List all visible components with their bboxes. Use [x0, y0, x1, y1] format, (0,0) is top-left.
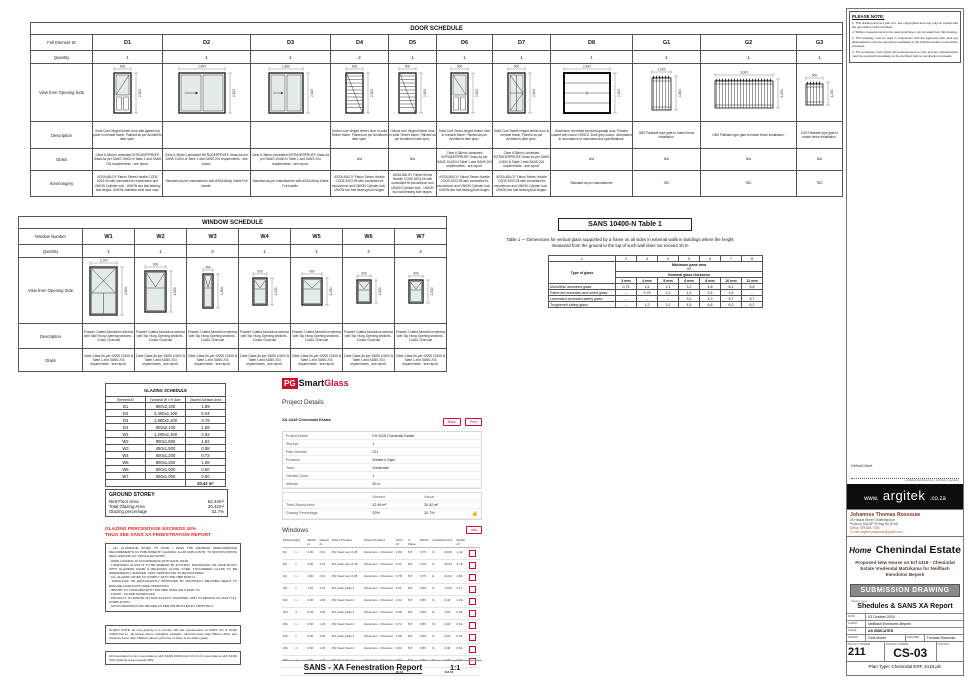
pg-logo-glass: Glass — [324, 378, 349, 388]
pg-windows-cell-4-1: 1 — [294, 596, 306, 608]
svg-text:900: 900 — [457, 65, 463, 69]
glazing-cell-5-0: W2 — [106, 438, 146, 445]
pg-windows-cell-0-7: 5.8 — [407, 548, 419, 560]
pg-windows-cell-4-5: Aluminium - Charcoal — [363, 596, 395, 608]
pg-windows-header-12 — [468, 536, 480, 548]
svg-text:2,100: 2,100 — [423, 89, 427, 97]
element-id-W5: W5 — [291, 229, 343, 245]
pg-windows-action-1[interactable] — [468, 560, 480, 572]
pg-windows-cell-3-9: N — [431, 584, 443, 596]
back-button[interactable]: Back — [443, 418, 461, 426]
revision-cell: REVISION — [937, 642, 963, 661]
element-qty-W4: 1 — [239, 245, 291, 258]
pg-windows-cell-1-0: D2 — [282, 560, 294, 572]
svg-text:2,100: 2,100 — [310, 89, 314, 97]
glazing-cell-3-1: 900x2,100 — [146, 424, 186, 431]
sheet-name: Shedules & SANS XA Report — [847, 603, 963, 610]
field-client-label: CLIENT — [847, 621, 866, 627]
please-note-item-4: 4. The contractor must check all measure… — [852, 50, 958, 58]
element-glass-G3: N/A — [797, 149, 843, 171]
element-qty-G1: 1 — [633, 51, 701, 64]
element-drawing-G1: 1,0001,800 — [633, 64, 701, 122]
pg-windows-cell-6-4: PG Clear Float 4 — [331, 620, 363, 632]
please-note-item-1: 1. This drawing and any part of it, are … — [852, 21, 958, 29]
element-drawing-D4: 9002,100 — [331, 64, 389, 122]
row-select-checkbox[interactable] — [469, 550, 476, 557]
pg-windows-cell-7-3: 1.20 — [319, 632, 331, 644]
pg-windows-cell-5-0: W3 — [282, 608, 294, 620]
pg-windows-action-0[interactable] — [468, 548, 480, 560]
pg-windows-cell-2-10: 21.92 — [443, 572, 455, 584]
row-select-checkbox[interactable] — [469, 598, 476, 605]
please-note-title: PLEASE NOTE: — [852, 14, 958, 19]
pg-windows-header-7: U Value — [407, 536, 419, 548]
pg-windows-header-9: Azimuth — [431, 536, 443, 548]
element-description-G2: GBS Palisade type gate to match fence in… — [701, 122, 797, 149]
pg-detail-row-2: Plan Number211 — [283, 448, 481, 456]
pg-windows-cell-5-11: 0.58 — [456, 608, 468, 620]
element-id-D3: D3 — [251, 35, 331, 51]
svg-text:900: 900 — [405, 65, 411, 69]
svg-text:600: 600 — [257, 269, 263, 273]
pg-subheader-buttons: Back Print — [443, 410, 482, 428]
element-id-D6: D6 — [437, 35, 493, 51]
footer-title: SANS - XA Fenestration Report — [304, 663, 422, 674]
pg-windows-cell-8-3: 1.00 — [319, 644, 331, 656]
pg-windows-cell-3-0: W1 — [282, 584, 294, 596]
pg-windows-header-8: SHGC — [419, 536, 431, 548]
element-drawing-W6: 6001,000 — [343, 258, 395, 324]
pg-windows-cell-6-1: 1 — [294, 620, 306, 632]
pg-summary-header: AllowedActual — [283, 493, 481, 501]
pg-windows-cell-4-6: 1.62 — [395, 596, 407, 608]
pg-windows-cell-2-6: 3.78 — [395, 572, 407, 584]
svg-text:2,400: 2,400 — [583, 65, 591, 69]
field-drawn-label: DRAWN — [847, 635, 866, 641]
glazing-cell-3-0: D4 — [106, 424, 146, 431]
element-qty-W2: 1 — [135, 245, 187, 258]
glazing-cell-4-1: 1,200x2,100 — [146, 431, 186, 438]
element-qty-D8: 1 — [551, 51, 633, 64]
svg-text:2,100: 2,100 — [617, 89, 621, 97]
pg-windows-header-11: SHGC m² — [456, 536, 468, 548]
sans-value-3-0: – — [616, 302, 637, 308]
revision-label: REVISION — [938, 643, 962, 646]
pg-section-title: Project Details — [282, 399, 482, 406]
element-drawing-W7: 6001,000 — [395, 258, 447, 324]
pg-windows-cell-7-8: 0.86 — [419, 632, 431, 644]
svg-text:900: 900 — [153, 262, 159, 266]
svg-text:1,000: 1,000 — [378, 287, 382, 295]
element-description-W1: Powder Coated Aluminium window with Side… — [83, 324, 135, 349]
svg-text:2,400: 2,400 — [198, 65, 206, 69]
pg-logo-smart: Smart — [299, 378, 325, 388]
pg-windows-header: Windows Add — [282, 526, 482, 534]
element-id-D5: D5 — [389, 35, 437, 51]
glazing-cell-10-0: W7 — [106, 473, 146, 480]
element-ironmongery-D1: ASSA ABLOY Fabori Series Handle CODE 620… — [93, 171, 163, 197]
submission-stamp: SUBMISSION DRAWING — [850, 584, 960, 597]
pg-logo: PG Smart Glass — [282, 376, 482, 390]
pg-windows-cell-6-2: 0.60 — [306, 620, 318, 632]
sans-table-caption: Table 1 — Dimensions for vertical glass … — [498, 237, 742, 249]
svg-text:1,000: 1,000 — [430, 287, 434, 295]
element-description-W2: Powder Coated Aluminium window with Top … — [135, 324, 187, 349]
please-note-box: PLEASE NOTE: 1. This drawing and any par… — [849, 11, 961, 63]
pg-windows-cell-0-11: 1.42 — [456, 548, 468, 560]
element-qty-G3: 1 — [797, 51, 843, 64]
sans-value-3-4: 6,8 — [700, 302, 721, 308]
pg-windows-cell-3-2: 1.20 — [306, 584, 318, 596]
schedule-glass-label: Glass — [31, 149, 93, 171]
element-ironmongery-D2: Standard as per manufacturer with ASSA A… — [163, 171, 251, 197]
please-note-item-2: 2. Written measurements to be used at al… — [852, 30, 958, 34]
pg-windows-cell-1-2: 2.40 — [306, 560, 318, 572]
pg-windows-cell-1-7: 5.8 — [407, 560, 419, 572]
argitek-www: www. — [864, 496, 878, 502]
element-ironmongery-D6: ASSA ABLOY Fabori Series Handle CODE 620… — [437, 171, 493, 197]
svg-text:900: 900 — [352, 65, 358, 69]
pg-windows-cell-1-4: PG Clear Lam 6.38 — [331, 560, 363, 572]
general-note-4: - 'MODILFILE' OR EQUIVALENTLY APPROVED B… — [109, 579, 237, 587]
svg-text:900: 900 — [514, 65, 520, 69]
pg-windows-cell-4-2: 0.90 — [306, 596, 318, 608]
element-id-D8: D8 — [551, 35, 633, 51]
svg-text:2,100: 2,100 — [475, 89, 479, 97]
glazing-cell-10-1: 600x1,000 — [146, 473, 186, 480]
svg-text:1,200: 1,200 — [830, 89, 834, 97]
pg-windows-cell-5-7: 5.8 — [407, 608, 419, 620]
element-ironmongery-D8: Standard as per manufacturer — [551, 171, 633, 197]
pg-windows-cell-0-3: 2.10 — [319, 548, 331, 560]
row-select-checkbox[interactable] — [469, 646, 476, 653]
door-schedule-table: DOOR SCHEDULEFull Element IDD1D2D3D4D5D6… — [30, 22, 843, 197]
project-prefix: Home — [849, 546, 871, 555]
svg-text:1,200: 1,200 — [329, 287, 333, 295]
sheet-name-wrap: drawing name Shedules & SANS XA Report — [847, 600, 963, 610]
pg-windows-header-4: Glass Product — [331, 536, 363, 548]
project-title: Home Chenindal Estate Proposed New House… — [847, 536, 963, 580]
element-glass-D5: N/A — [389, 149, 437, 171]
pg-windows-action-5[interactable] — [468, 608, 480, 620]
pg-windows-action-4[interactable] — [468, 596, 480, 608]
pg-windows-cell-5-1: 3 — [294, 608, 306, 620]
field-drawn: DRAWN Cela Moller CHECKED Thomas Rossouw — [847, 634, 963, 641]
element-glass-W1: Clear Glass As per SANS 10400-N Table 1 … — [83, 349, 135, 372]
field-scale: SCALE AS INDICATED — [847, 627, 963, 634]
element-ironmongery-D3: Standard as per manufacturer with ASSA A… — [251, 171, 331, 197]
argitek-tld: .co.za — [930, 496, 946, 502]
element-drawing-G3: 9001,200 — [797, 64, 843, 122]
svg-text:1,800: 1,800 — [282, 65, 290, 69]
pg-windows-cell-8-11: 0.52 — [456, 644, 468, 656]
element-description-G3: CAS Palisade type gate to match fence in… — [797, 122, 843, 149]
row-select-checkbox[interactable] — [469, 562, 476, 569]
pg-windows-cell-6-7: 5.8 — [407, 620, 419, 632]
element-id-G2: G2 — [701, 35, 797, 51]
schedule-id-label: Full Element ID — [31, 35, 93, 51]
glazing-cell-7-1: 600x1,200 — [146, 452, 186, 459]
svg-text:450: 450 — [205, 266, 211, 270]
pg-windows-cell-1-9: N — [431, 560, 443, 572]
glazing-cell-4-0: W1 — [106, 431, 146, 438]
schedule-desc-label: Description — [31, 122, 93, 149]
svg-text:2,100: 2,100 — [124, 287, 128, 295]
row-select-checkbox[interactable] — [469, 574, 476, 581]
svg-text:3,000: 3,000 — [740, 70, 748, 74]
argitek-name: argitek — [883, 488, 926, 503]
element-qty-D2: 1 — [163, 51, 251, 64]
pg-windows-cell-1-6: 5.04 — [395, 560, 407, 572]
pg-windows-cell-2-7: 5.8 — [407, 572, 419, 584]
glazing-cell-5-2: 1.62 — [186, 438, 226, 445]
svg-text:1,000: 1,000 — [658, 68, 666, 72]
pg-windows-cell-5-3: 1.50 — [319, 608, 331, 620]
sans-table-wrap: 12345678Type of glassMaximum pane aream²… — [548, 255, 763, 308]
pg-windows-cell-3-6: 2.52 — [395, 584, 407, 596]
element-ironmongery-G1: TBC — [633, 171, 701, 197]
glazing-total-spacer — [106, 480, 186, 487]
element-drawing-W5: 9001,200 — [291, 258, 343, 324]
pg-windows-cell-1-10: 29.23 — [443, 560, 455, 572]
sans-value-3-6: 6,2 — [742, 302, 763, 308]
pg-windows-header-6: Area m² — [395, 536, 407, 548]
drawing-number-cell: DRAWING NUMBER CS-03 — [885, 642, 937, 661]
pg-windows-cell-8-5: Aluminium - Charcoal — [363, 644, 395, 656]
sans-value-3-1: 1,2 — [637, 302, 658, 308]
pg-windows-cell-7-9: N — [431, 632, 443, 644]
element-qty-D7: 1 — [493, 51, 551, 64]
pg-windows-cell-0-8: 0.75 — [419, 548, 431, 560]
glazing-cell-9-2: 0.60 — [186, 466, 226, 473]
pg-windows-cell-7-6: 1.08 — [395, 632, 407, 644]
element-drawing-D3: 1,8002,100 — [251, 64, 331, 122]
sans-type-header: Type of glass — [549, 262, 616, 284]
pg-detail-row-1: Storeys1 — [283, 440, 481, 448]
element-qty-G2: 1 — [701, 51, 797, 64]
field-client-value: Neilflash Eiendoms Beperk — [866, 621, 963, 627]
element-glass-D8: N/A — [551, 149, 633, 171]
element-drawing-W3: 4501,500 — [187, 258, 239, 324]
pg-windows-cell-6-0: W4 — [282, 620, 294, 632]
pg-windows-table: ElementQtyWidth mHeight mGlass ProductFr… — [282, 536, 480, 676]
pg-windows-cell-1-8: 0.75 — [419, 560, 431, 572]
sans-value-3-2: 3,2 — [658, 302, 679, 308]
element-description-D4: Hollow core hinged timber door in solid … — [331, 122, 389, 149]
glazing-cell-1-0: D2 — [106, 410, 146, 417]
element-glass-D7: Clear 6.38mm Laminated INTRUDERPRUFE Gla… — [493, 149, 551, 171]
sans-table: 12345678Type of glassMaximum pane aream²… — [548, 255, 763, 308]
glazing-cell-9-0: W6 — [106, 466, 146, 473]
client-note-text: CLIENT NOTE: all new glazing is to compl… — [109, 628, 237, 641]
pg-windows-cell-1-3: 2.10 — [319, 560, 331, 572]
element-glass-W6: Clear Glass As per SANS 10400-N Table 1 … — [343, 349, 395, 372]
svg-text:900: 900 — [120, 65, 126, 69]
pg-windows-cell-3-10: 14.62 — [443, 584, 455, 596]
pg-windows-cell-1-5: Aluminium - Charcoal — [363, 560, 395, 572]
element-ironmongery-D7: ASSA ABLOY Fabori Series Handle CODE 620… — [493, 171, 551, 197]
field-checked-label: CHECKED — [906, 635, 925, 641]
element-glass-D3: Clear 6.38mm Laminated INTRUDERPRUFE Gla… — [251, 149, 331, 171]
pg-summary-row-0: Total Glazed Area12.49 m²20.42 m² — [283, 501, 481, 509]
pg-windows-action-3[interactable] — [468, 584, 480, 596]
element-id-D4: D4 — [331, 35, 389, 51]
pg-windows-cell-1-11: 3.78 — [456, 560, 468, 572]
element-glass-G2: N/A — [701, 149, 797, 171]
svg-text:1,500: 1,500 — [220, 287, 224, 295]
svg-text:600: 600 — [361, 271, 367, 275]
glazing-cell-7-0: W4 — [106, 452, 146, 459]
glazing-cell-2-1: 1,800x2,100 — [146, 417, 186, 424]
pg-windows-cell-7-2: 0.90 — [306, 632, 318, 644]
schedule-view-label: View from Opening Side — [19, 258, 83, 324]
element-glass-W3: Clear Glass As per SANS 10400-N Table 1 … — [187, 349, 239, 372]
plan-type: Plan Type: Chenindal ERF 4418.pln — [847, 661, 963, 671]
pg-windows-cell-5-5: Aluminium - Charcoal — [363, 608, 395, 620]
pg-windows-cell-6-3: 1.20 — [319, 620, 331, 632]
footer-scale: 1:1 — [450, 665, 460, 672]
pg-windows-action-8[interactable] — [468, 644, 480, 656]
pg-windows-cell-5-4: PG Clear Float 4 — [331, 608, 363, 620]
pg-windows-cell-4-4: PG Clear Float 4 — [331, 596, 363, 608]
door-schedule: DOOR SCHEDULEFull Element IDD1D2D3D4D5D6… — [30, 22, 843, 197]
pg-windows-action-6[interactable] — [468, 620, 480, 632]
pg-details-card: Project NameErf 4418 Chenindal EstateSto… — [282, 431, 482, 489]
pg-windows-cell-4-9: S — [431, 596, 443, 608]
window-schedule-table: WINDOW SCHEDULEWindow NumberW1W2W3W4W5W6… — [18, 216, 447, 372]
please-note-items: 1. This drawing and any part of it, are … — [852, 21, 958, 59]
pg-windows-action-2[interactable] — [468, 572, 480, 584]
glazing-cell-2-2: 3.78 — [186, 417, 226, 424]
element-id-W6: W6 — [343, 229, 395, 245]
glazing-cell-8-1: 900x1,200 — [146, 459, 186, 466]
schedule-title: DOOR SCHEDULE — [31, 23, 843, 35]
row-select-checkbox[interactable] — [469, 610, 476, 617]
element-qty-W7: 4 — [395, 245, 447, 258]
element-description-D5: Hollow core hinged timber door in solid … — [389, 122, 437, 149]
pg-windows-cell-8-4: PG Clear Float 4 — [331, 644, 363, 656]
element-id-G1: G1 — [633, 35, 701, 51]
pg-windows-cell-3-5: Aluminium - Charcoal — [363, 584, 395, 596]
element-glass-D1: Clear 6.38mm Laminated INTRUDERPRUFE Gla… — [93, 149, 163, 171]
general-notes-box: - ALL ALUMINIUM WORK TO HAVE / PASS THE … — [105, 543, 241, 612]
pg-summary-card: AllowedActualTotal Glazed Area12.49 m²20… — [282, 492, 482, 520]
svg-text:1,800: 1,800 — [173, 287, 177, 295]
general-note-2: - LAMINATED GLASS IS TO BE MARKED BY ETC… — [109, 563, 237, 576]
pg-windows-cell-7-7: 5.8 — [407, 632, 419, 644]
schedule-id-label: Window Number — [19, 229, 83, 245]
pg-windows-cell-3-11: 2.17 — [456, 584, 468, 596]
element-description-W5: Powder Coated Aluminium window with Top … — [291, 324, 343, 349]
svg-text:2,100: 2,100 — [532, 89, 536, 97]
glazing-cell-10-2: 0.60 — [186, 473, 226, 480]
architect-info: Johannes Thomas Rossouw 25 Hassel Street… — [847, 509, 963, 536]
pg-summary-row-1: Glazing Percentage20%32.7%👍 — [283, 509, 481, 519]
client-signature-line — [851, 472, 959, 479]
pg-windows-cell-6-6: 0.72 — [395, 620, 407, 632]
svg-text:1,500: 1,500 — [780, 89, 784, 97]
element-id-D2: D2 — [163, 35, 251, 51]
glazing-cell-7-2: 0.72 — [186, 452, 226, 459]
element-description-D1: Solid Core hinged timber door with glaze… — [93, 122, 163, 149]
pg-windows-cell-4-11: 1.39 — [456, 596, 468, 608]
field-scale-value: AS INDICATED — [866, 628, 963, 634]
project-number: 211 — [848, 646, 883, 658]
print-button[interactable]: Print — [465, 418, 482, 426]
pg-detail-row-4: TownVredendal — [283, 464, 481, 472]
element-id-W4: W4 — [239, 229, 291, 245]
add-window-button[interactable]: Add — [466, 526, 482, 534]
pg-detail-row-5: Climatic Zone1 — [283, 472, 481, 480]
glazing-cell-3-2: 1.89 — [186, 424, 226, 431]
sans-area-header: Maximum pane aream² — [616, 262, 763, 272]
row-select-checkbox[interactable] — [469, 586, 476, 593]
svg-text:2,100: 2,100 — [138, 89, 142, 97]
element-id-W2: W2 — [135, 229, 187, 245]
element-description-W4: Powder Coated Aluminium window with Top … — [239, 324, 291, 349]
svg-text:1,200: 1,200 — [274, 287, 278, 295]
pg-windows-cell-5-9: E — [431, 608, 443, 620]
pg-windows-cell-0-0: D1 — [282, 548, 294, 560]
pg-windows-cell-2-3: 2.10 — [319, 572, 331, 584]
window-schedule: WINDOW SCHEDULEWindow NumberW1W2W3W4W5W6… — [18, 216, 447, 372]
field-date-label: DATE — [847, 614, 866, 620]
pg-windows-cell-8-6: 0.60 — [395, 644, 407, 656]
element-drawing-D7: 9002,100 — [493, 64, 551, 122]
pg-windows-cell-2-0: D3 — [282, 572, 294, 584]
schedule-qty-label: Quantity — [31, 51, 93, 64]
sans-row-type-3: Toughened safety glass — [549, 302, 616, 308]
row-select-checkbox[interactable] — [469, 622, 476, 629]
element-ironmongery-D5: ASSA ABLOY Fabori Series Handle CODE 620… — [389, 171, 437, 197]
architect-email[interactable]: E-mail: argitek.jtrossouw@gmail.com — [850, 530, 960, 534]
glazing-cell-4-2: 2.52 — [186, 431, 226, 438]
field-date-value: 03 October 2024 — [866, 614, 963, 620]
element-id-G3: G3 — [797, 35, 843, 51]
sans-value-3-5: 6,2 — [721, 302, 742, 308]
pg-windows-cell-8-0: W6 — [282, 644, 294, 656]
element-description-D8: Aluminium overhead sectional garage door… — [551, 122, 633, 149]
pg-windows-cell-6-8: 0.86 — [419, 620, 431, 632]
pg-windows-cell-6-5: Aluminium - Charcoal — [363, 620, 395, 632]
element-drawing-W1: 1,2002,100 — [83, 258, 135, 324]
row-select-checkbox[interactable] — [469, 634, 476, 641]
glazing-total: 20.42 m² — [186, 480, 226, 487]
element-glass-W5: Clear Glass As per SANS 10400-N Table 1 … — [291, 349, 343, 372]
element-qty-D3: 1 — [251, 51, 331, 64]
project-name: Chenindal Estate — [876, 544, 961, 556]
general-note-0: - ALL ALUMINIUM WORK TO HAVE / PASS THE … — [109, 546, 237, 559]
pg-windows-cell-2-11: 2.84 — [456, 572, 468, 584]
svg-text:1,800: 1,800 — [678, 89, 682, 97]
sans-value-3-3: 4,5 — [679, 302, 700, 308]
pg-windows-action-7[interactable] — [468, 632, 480, 644]
element-glass-D6: Clear 6.38mm Laminated INTRUDERPRUFE Gla… — [437, 149, 493, 171]
pg-windows-cell-8-9: S — [431, 644, 443, 656]
pg-windows-cell-8-2: 0.60 — [306, 644, 318, 656]
pg-windows-cell-6-10: 4.18 — [443, 620, 455, 632]
pg-windows-cell-0-9: N — [431, 548, 443, 560]
project-number-cell: PROJECT NUMBER 211 — [847, 642, 885, 661]
pg-windows-cell-1-1: 1 — [294, 560, 306, 572]
glazing-cell-6-1: 450x1,500 — [146, 445, 186, 452]
pg-windows-cell-7-1: 1 — [294, 632, 306, 644]
element-drawing-D6: 9002,100 — [437, 64, 493, 122]
general-note-7: - PRODUCT TO ARRIVE ON SITE PLASTIC WRAP… — [109, 596, 237, 604]
glazing-cell-8-0: W5 — [106, 459, 146, 466]
pg-windows-cell-8-10: 3.48 — [443, 644, 455, 656]
pg-windows-cell-7-11: 0.93 — [456, 632, 468, 644]
